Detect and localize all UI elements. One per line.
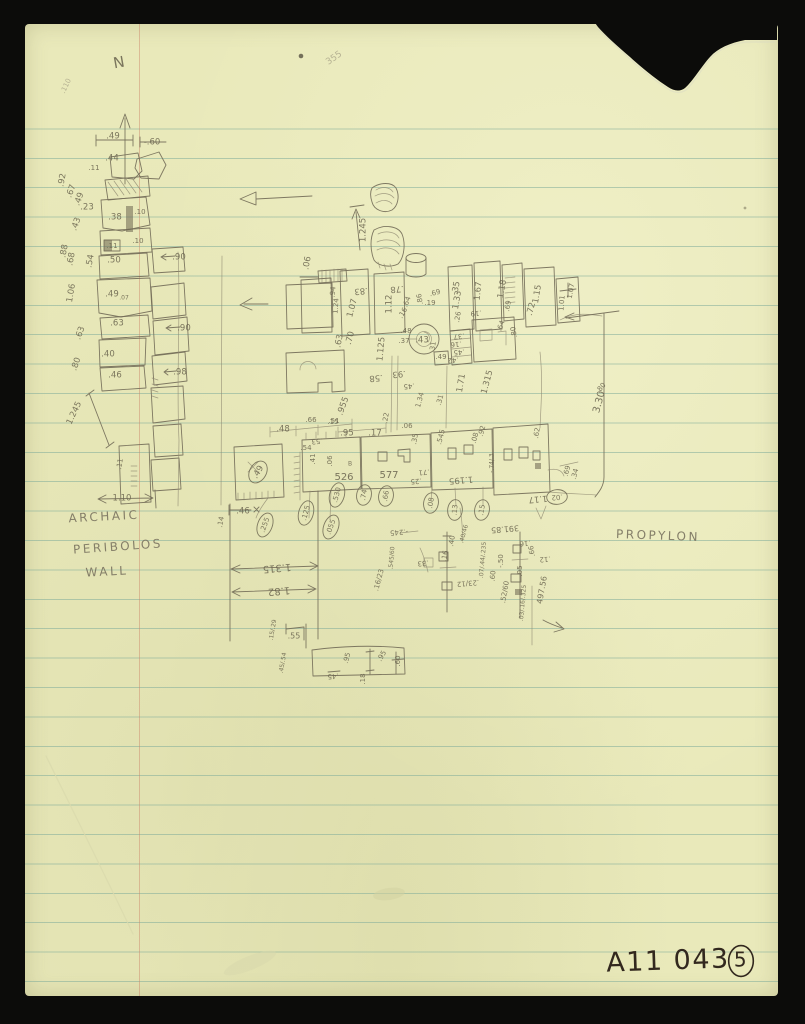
scanned-sketch-page: N.110.49-.60.44.11.92.67.49.23.43.38.10.…	[0, 0, 805, 1024]
margin-line	[139, 24, 140, 996]
ruled-lines	[25, 100, 778, 988]
notebook-paper	[25, 24, 778, 996]
